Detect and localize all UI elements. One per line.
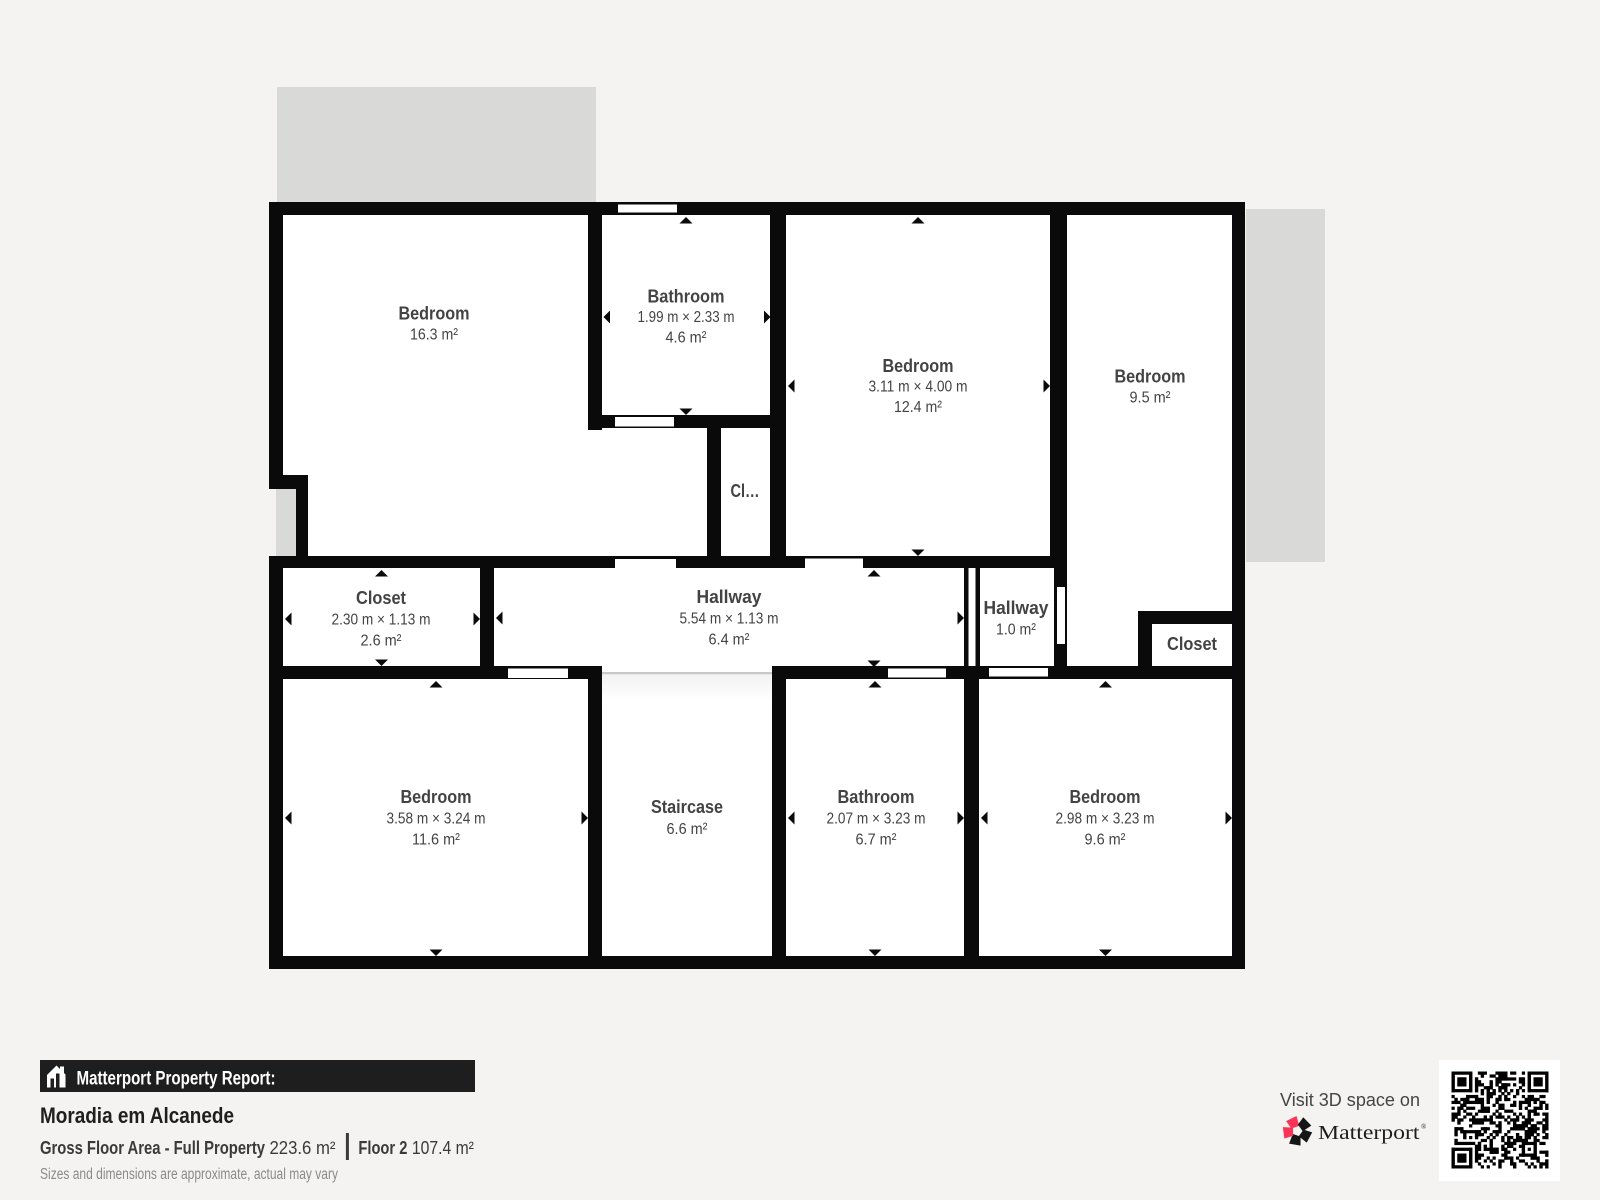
svg-text:6.6 m²: 6.6 m² — [667, 821, 709, 838]
svg-text:Gross Floor Area - Full Proper: Gross Floor Area - Full Property — [40, 1138, 265, 1158]
svg-text:223.6 m²: 223.6 m² — [270, 1138, 336, 1158]
svg-text:Closet: Closet — [1167, 633, 1217, 654]
svg-text:Bedroom: Bedroom — [1070, 786, 1141, 807]
svg-text:2.07 m × 3.23 m: 2.07 m × 3.23 m — [827, 811, 926, 828]
svg-text:Matterport: Matterport — [1318, 1122, 1420, 1144]
svg-text:Bathroom: Bathroom — [838, 786, 915, 807]
svg-text:1.0 m²: 1.0 m² — [996, 622, 1037, 639]
svg-text:9.5 m²: 9.5 m² — [1130, 390, 1172, 407]
svg-text:Floor 2: Floor 2 — [358, 1138, 407, 1158]
svg-text:®: ® — [1421, 1123, 1427, 1131]
svg-text:6.4 m²: 6.4 m² — [709, 632, 751, 649]
svg-text:2.30 m × 1.13 m: 2.30 m × 1.13 m — [332, 612, 431, 629]
svg-text:Bathroom: Bathroom — [648, 286, 725, 307]
svg-text:2.6 m²: 2.6 m² — [361, 633, 403, 650]
svg-text:6.7 m²: 6.7 m² — [856, 832, 898, 849]
svg-text:107.4 m²: 107.4 m² — [412, 1138, 474, 1158]
svg-text:3.11 m × 4.00 m: 3.11 m × 4.00 m — [869, 379, 968, 396]
svg-text:Hallway: Hallway — [984, 597, 1050, 618]
svg-text:Sizes and dimensions are appro: Sizes and dimensions are approximate, ac… — [40, 1166, 338, 1183]
svg-text:Bedroom: Bedroom — [883, 355, 954, 376]
svg-text:Staircase: Staircase — [651, 796, 723, 817]
svg-text:Moradia em Alcanede: Moradia em Alcanede — [40, 1103, 234, 1128]
svg-text:16.3 m²: 16.3 m² — [410, 327, 459, 344]
svg-text:4.6 m²: 4.6 m² — [666, 330, 708, 347]
svg-text:11.6 m²: 11.6 m² — [412, 832, 461, 849]
svg-text:9.6 m²: 9.6 m² — [1085, 832, 1127, 849]
svg-text:Bedroom: Bedroom — [399, 303, 470, 324]
svg-text:12.4 m²: 12.4 m² — [894, 399, 943, 416]
svg-text:Hallway: Hallway — [697, 586, 763, 607]
svg-text:Cl…: Cl… — [731, 480, 760, 501]
svg-text:1.99 m × 2.33 m: 1.99 m × 2.33 m — [638, 309, 735, 326]
svg-text:Matterport Property Report:: Matterport Property Report: — [77, 1069, 276, 1090]
svg-text:Bedroom: Bedroom — [401, 786, 472, 807]
svg-text:Visit 3D space on: Visit 3D space on — [1280, 1089, 1420, 1110]
svg-text:Bedroom: Bedroom — [1115, 366, 1186, 387]
svg-text:5.54 m × 1.13 m: 5.54 m × 1.13 m — [680, 611, 779, 628]
svg-text:2.98 m × 3.23 m: 2.98 m × 3.23 m — [1056, 811, 1155, 828]
svg-text:3.58 m × 3.24 m: 3.58 m × 3.24 m — [387, 811, 486, 828]
svg-text:Closet: Closet — [356, 587, 406, 608]
